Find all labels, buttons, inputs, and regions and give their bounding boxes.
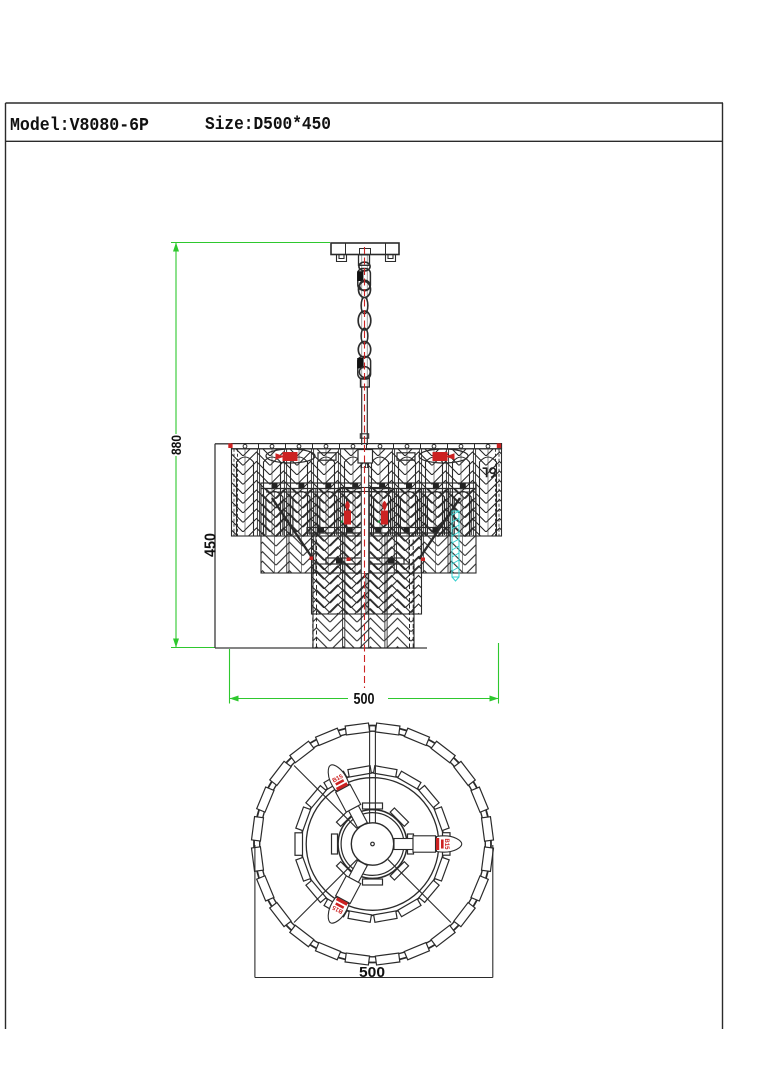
svg-text:880: 880 bbox=[169, 435, 184, 455]
svg-text:Model:V8080-6P: Model:V8080-6P bbox=[10, 115, 149, 136]
svg-text:B15: B15 bbox=[443, 838, 449, 850]
svg-text:Size:D500*450: Size:D500*450 bbox=[205, 114, 331, 135]
svg-text:450: 450 bbox=[203, 533, 220, 557]
svg-text:500: 500 bbox=[354, 691, 375, 708]
svg-text:500: 500 bbox=[359, 964, 385, 981]
